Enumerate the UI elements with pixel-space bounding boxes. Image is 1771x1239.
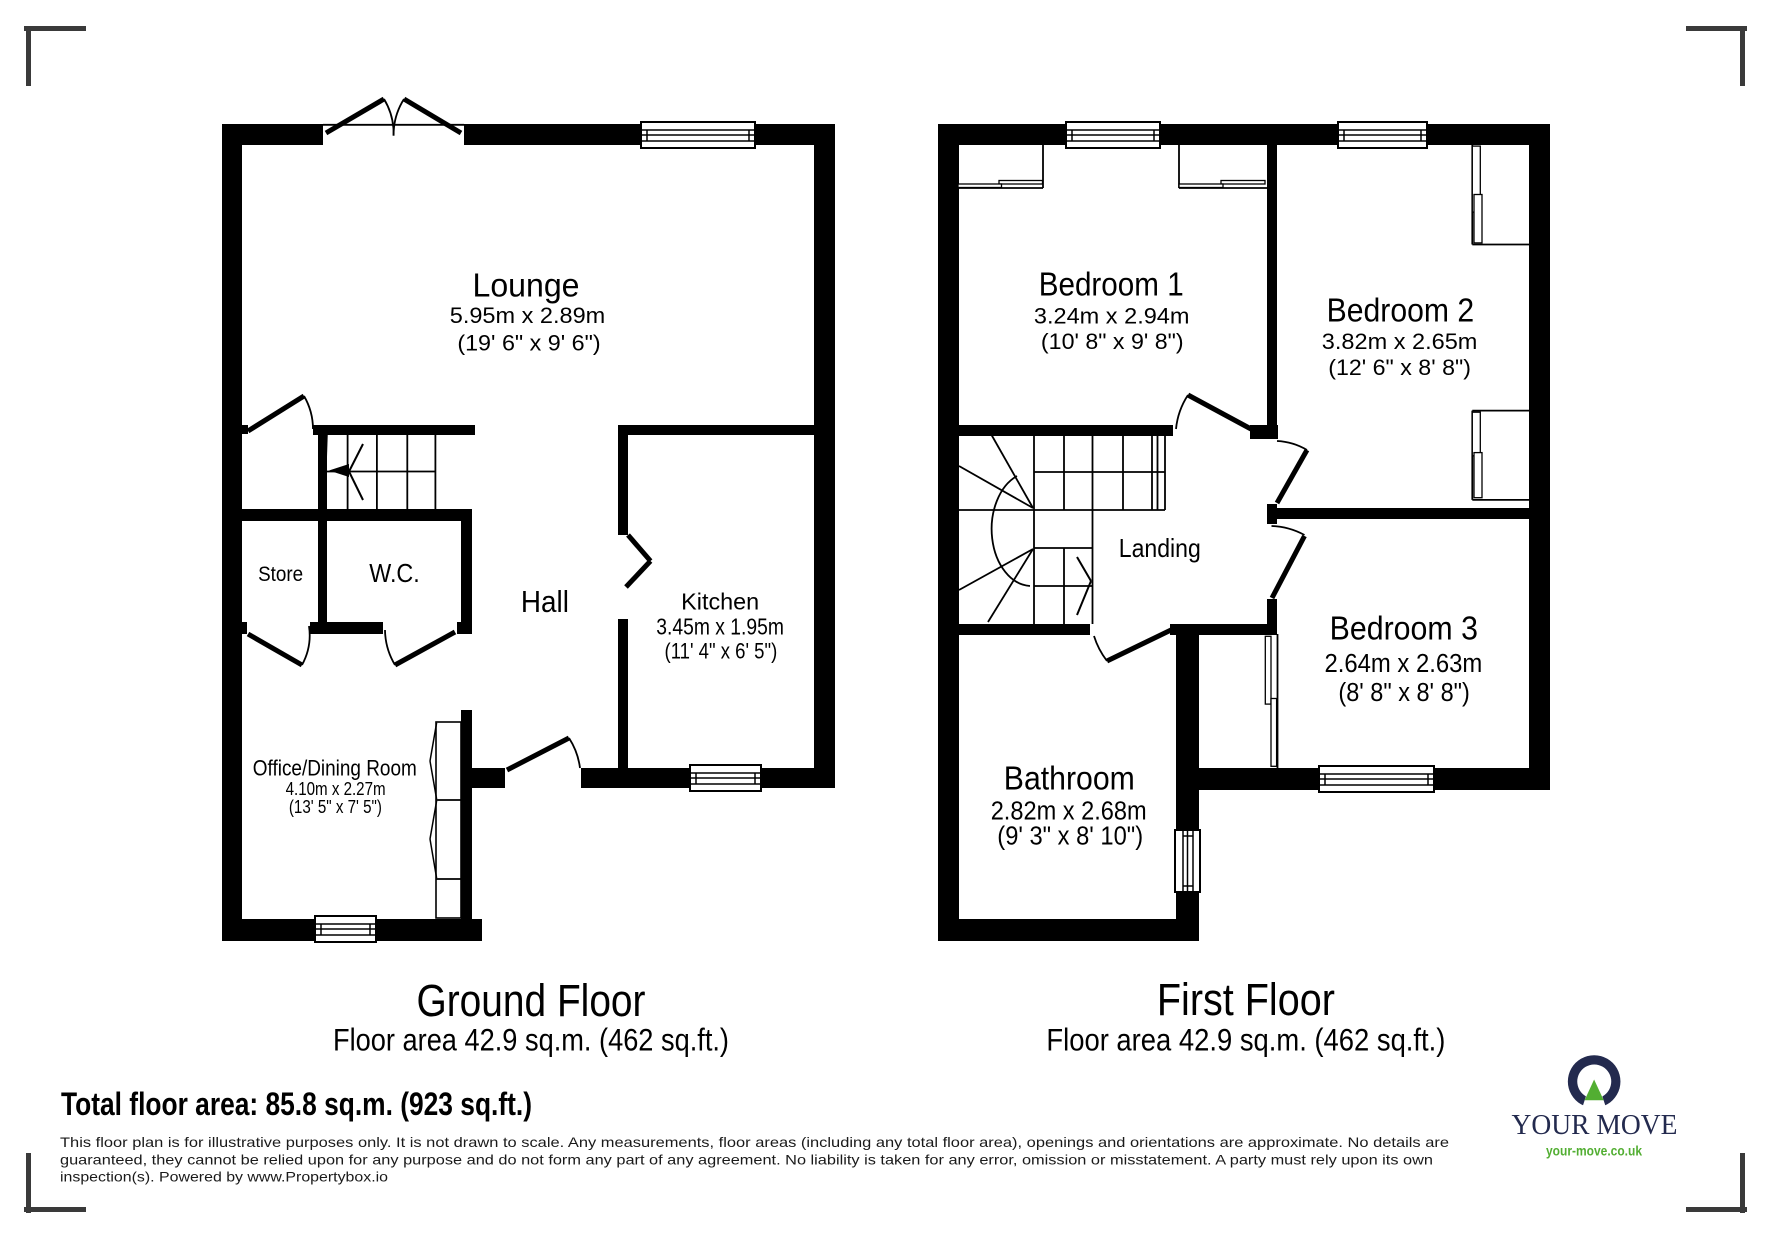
- svg-text:inspection(s). Powered by www.: inspection(s). Powered by www.Propertybo…: [60, 1169, 388, 1185]
- svg-text:Store: Store: [258, 562, 303, 586]
- svg-text:Bathroom: Bathroom: [1004, 759, 1135, 796]
- svg-text:3.82m x 2.65m: 3.82m x 2.65m: [1322, 329, 1478, 354]
- svg-text:This floor plan is for illustr: This floor plan is for illustrative purp…: [60, 1134, 1449, 1150]
- svg-text:2.82m x 2.68m: 2.82m x 2.68m: [991, 798, 1147, 826]
- svg-text:(13' 5" x 7' 5"): (13' 5" x 7' 5"): [289, 796, 382, 817]
- svg-text:your-move.co.uk: your-move.co.uk: [1546, 1144, 1642, 1159]
- svg-text:5.95m x 2.89m: 5.95m x 2.89m: [450, 303, 606, 328]
- svg-text:(9' 3" x 8' 10"): (9' 3" x 8' 10"): [997, 823, 1143, 851]
- svg-text:Office/Dining Room: Office/Dining Room: [253, 756, 417, 781]
- svg-text:3.45m x 1.95m: 3.45m x 1.95m: [656, 614, 784, 640]
- svg-text:Hall: Hall: [521, 585, 569, 619]
- svg-text:2.64m x 2.63m: 2.64m x 2.63m: [1325, 650, 1483, 678]
- svg-text:Bedroom 3: Bedroom 3: [1330, 610, 1478, 647]
- svg-text:(11' 4" x 6' 5"): (11' 4" x 6' 5"): [665, 639, 778, 664]
- svg-text:guaranteed, they cannot be rel: guaranteed, they cannot be relied upon f…: [60, 1151, 1433, 1167]
- svg-text:Kitchen: Kitchen: [681, 589, 759, 615]
- svg-text:W.C.: W.C.: [369, 558, 420, 588]
- svg-text:Ground Floor: Ground Floor: [417, 975, 646, 1026]
- svg-text:Floor area 42.9 sq.m. (462 sq.: Floor area 42.9 sq.m. (462 sq.ft.): [1046, 1022, 1445, 1058]
- svg-text:YOUR MOVE: YOUR MOVE: [1512, 1110, 1678, 1141]
- svg-text:(10' 8" x 9' 8"): (10' 8" x 9' 8"): [1041, 329, 1184, 354]
- svg-text:(19' 6" x 9' 6"): (19' 6" x 9' 6"): [457, 331, 600, 356]
- svg-text:First Floor: First Floor: [1157, 974, 1335, 1025]
- svg-text:Floor area 42.9 sq.m. (462 sq.: Floor area 42.9 sq.m. (462 sq.ft.): [333, 1022, 729, 1058]
- svg-text:Bedroom 1: Bedroom 1: [1039, 266, 1184, 303]
- svg-text:Bedroom 2: Bedroom 2: [1327, 292, 1475, 329]
- svg-text:3.24m x 2.94m: 3.24m x 2.94m: [1034, 303, 1190, 328]
- svg-text:Lounge: Lounge: [473, 267, 580, 304]
- svg-text:(8' 8" x 8' 8"): (8' 8" x 8' 8"): [1338, 679, 1469, 707]
- svg-text:Landing: Landing: [1119, 535, 1201, 563]
- svg-text:Total floor area: 85.8 sq.m. (: Total floor area: 85.8 sq.m. (923 sq.ft.…: [61, 1086, 532, 1122]
- svg-text:(12' 6" x 8' 8"): (12' 6" x 8' 8"): [1328, 355, 1471, 380]
